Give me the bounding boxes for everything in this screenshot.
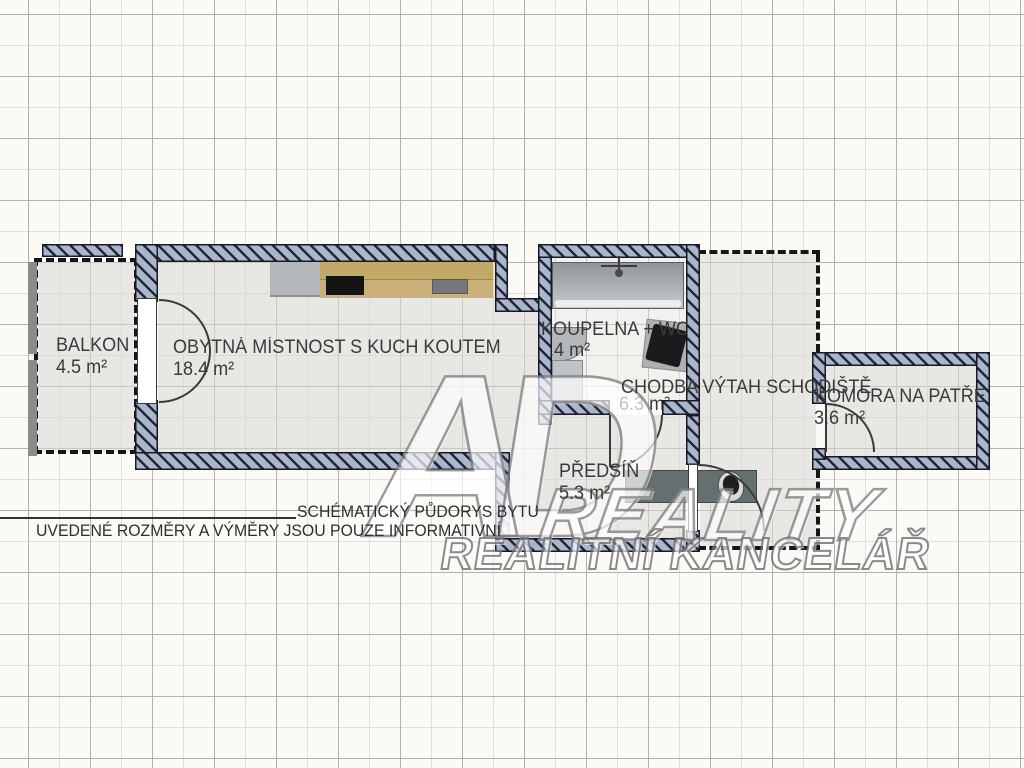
floor-plan: 3.4 m² 6.3 m² bbox=[0, 0, 1024, 768]
faucet-icon bbox=[615, 269, 623, 277]
room-label-living: OBYTNÁ MÍSTNOST S KUCH KOUTEM bbox=[173, 338, 501, 358]
room-area-storage: 3.6 m² bbox=[814, 409, 865, 429]
note-rule-line bbox=[0, 517, 296, 519]
room-label-balcony: BALKON bbox=[56, 336, 129, 356]
room-label-storage: KOMORA NA PATŘE bbox=[815, 387, 986, 407]
note-schematic: SCHÉMATICKÝ PŮDORYS BYTU bbox=[297, 502, 539, 521]
watermark-kancelar: REALITNÍ KANCELÁŘ bbox=[437, 528, 935, 580]
room-area-balcony: 4.5 m² bbox=[56, 358, 107, 378]
room-area-hall: 5.3 m² bbox=[559, 484, 610, 504]
room-area-living: 18.4 m² bbox=[173, 360, 234, 380]
room-label-hall: PŘEDSÍŇ bbox=[559, 462, 639, 482]
room-label-bathroom: KOUPELNA + WC bbox=[541, 320, 689, 340]
note-disclaimer: UVEDENÉ ROZMĚRY A VÝMĚRY JSOU POUZE INFO… bbox=[36, 521, 501, 540]
